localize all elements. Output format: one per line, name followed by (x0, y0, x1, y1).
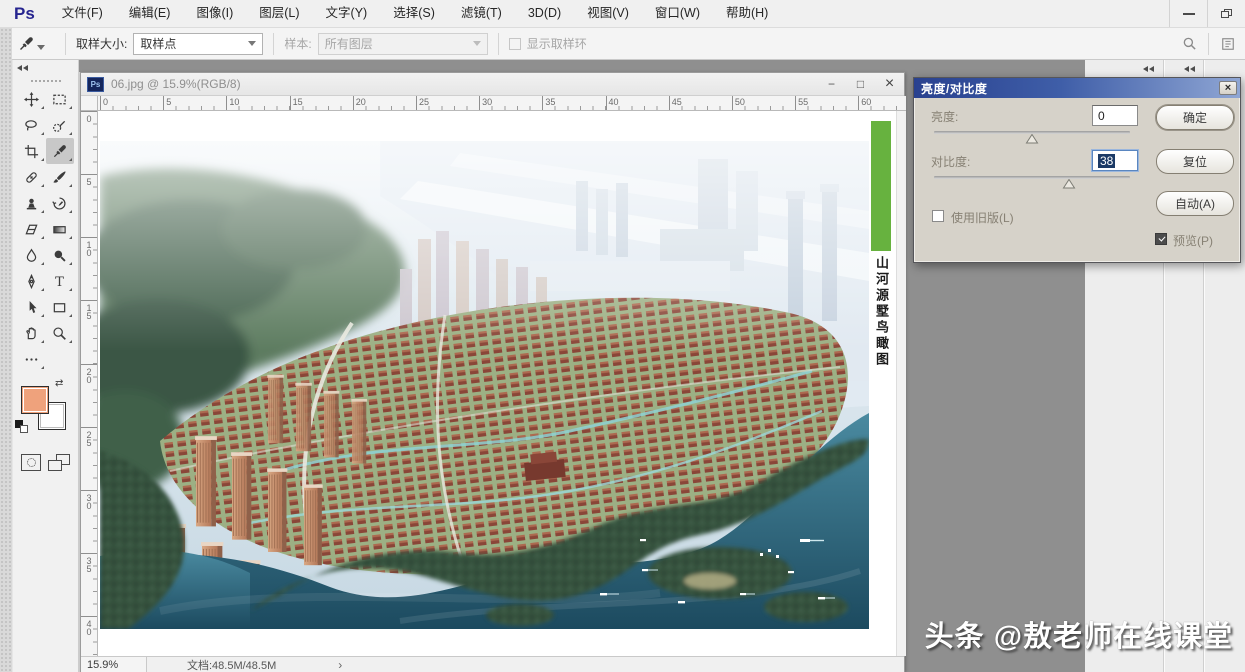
options-bar: 取样大小: 取样点 样本: 所有图层 显示取样环 (0, 28, 1245, 60)
dialog-title: 亮度/对比度 (921, 80, 987, 97)
sample-size-label: 取样大小: (76, 35, 127, 52)
ruler-tick: 15 (290, 96, 353, 110)
ruler-tick: 55 (795, 96, 858, 110)
reset-button[interactable]: 复位 (1156, 149, 1234, 174)
menu-items: 文件(F)编辑(E)图像(I)图层(L)文字(Y)选择(S)滤镜(T)3D(D)… (49, 0, 782, 27)
vertical-ruler[interactable]: 0510152025303540 (81, 111, 98, 656)
restore-icon (1221, 9, 1232, 18)
eraser-tool[interactable] (18, 216, 46, 242)
contrast-slider-track[interactable] (934, 176, 1130, 179)
rectangular-marquee-tool[interactable] (46, 86, 74, 112)
ruler-tick: 5 (81, 174, 97, 237)
spot-healing-brush-tool[interactable] (18, 164, 46, 190)
screen-mode-button[interactable] (48, 454, 70, 471)
app-restore-button[interactable] (1207, 0, 1245, 27)
canvas[interactable]: 山河源墅鸟瞰图 (98, 111, 906, 656)
ruler-tick: 50 (732, 96, 795, 110)
default-colors-icon[interactable] (15, 420, 28, 433)
ok-button[interactable]: 确定 (1156, 105, 1234, 130)
menu-item[interactable]: 文件(F) (49, 0, 116, 27)
status-popup-arrow[interactable]: › (338, 658, 342, 672)
swap-colors-icon[interactable]: ⇄ (55, 378, 63, 389)
vertical-scrollbar[interactable] (896, 111, 906, 656)
lasso-tool[interactable] (18, 112, 46, 138)
preview-label: 预览(P) (1173, 232, 1213, 249)
toolbar-bottom (13, 440, 78, 471)
window-controls (1169, 0, 1245, 27)
contrast-value-selected: 38 (1098, 154, 1115, 168)
color-swatches: ⇄ (13, 376, 78, 440)
poster-vertical-title: 山河源墅鸟瞰图 (869, 256, 893, 426)
ruler-corner[interactable] (81, 96, 98, 111)
move-tool[interactable] (18, 86, 46, 112)
zoom-level-field[interactable]: 15.9% (81, 657, 147, 672)
contrast-value-field[interactable]: 38 (1092, 150, 1138, 171)
sample-label: 样本: (284, 35, 311, 52)
ruler-tick: 20 (353, 96, 416, 110)
search-icon (1182, 36, 1197, 51)
document-window: Ps 06.jpg @ 15.9%(RGB/8) − □ × 051015202… (80, 72, 905, 672)
doc-minimize-button[interactable]: − (817, 73, 846, 95)
workspace-panel-button[interactable] (1211, 28, 1245, 59)
contrast-label: 对比度: (931, 153, 970, 170)
use-legacy-checkbox[interactable] (932, 210, 944, 222)
contrast-slider-thumb[interactable] (1062, 178, 1076, 188)
collapse-panel-button[interactable] (13, 60, 78, 74)
sample-select: 所有图层 (318, 33, 488, 55)
tools-panel: T ⇄ (12, 60, 79, 672)
ruler-tick: 10 (81, 237, 97, 300)
eyedropper-tool[interactable] (46, 138, 74, 164)
dodge-tool[interactable] (46, 242, 74, 268)
menu-item[interactable]: 3D(D) (515, 0, 574, 27)
ruler-tick: 35 (542, 96, 605, 110)
menu-item[interactable]: 编辑(E) (116, 0, 184, 27)
menu-item[interactable]: 窗口(W) (642, 0, 713, 27)
collapse-icon (17, 65, 22, 71)
divider (273, 33, 274, 55)
quick-mask-icon (27, 458, 36, 467)
document-title: 06.jpg @ 15.9%(RGB/8) (111, 77, 241, 91)
ruler-tick: 5 (163, 96, 226, 110)
sample-size-value: 取样点 (140, 35, 176, 52)
menu-item[interactable]: 图层(L) (246, 0, 312, 27)
menu-item[interactable]: 选择(S) (380, 0, 448, 27)
panel-drag-edge (0, 28, 12, 672)
shape-tool[interactable] (46, 294, 74, 320)
photoshop-app: Ps 文件(F)编辑(E)图像(I)图层(L)文字(Y)选择(S)滤镜(T)3D… (0, 0, 1245, 672)
chevron-down-icon (37, 45, 45, 50)
preview-checkbox[interactable] (1155, 233, 1167, 245)
brightness-value: 0 (1098, 109, 1105, 123)
eyedropper-icon (18, 36, 34, 52)
doc-close-button[interactable]: × (875, 73, 904, 95)
dialog-titlebar[interactable]: 亮度/对比度 × (914, 78, 1240, 98)
pen-tool[interactable] (18, 268, 46, 294)
ruler-tick: 40 (81, 616, 97, 656)
ruler-tick: 30 (479, 96, 542, 110)
watermark-text: 头条 @敖老师在线课堂 (925, 613, 1233, 655)
show-sampling-ring-checkbox (509, 38, 521, 50)
zoom-tool[interactable] (46, 320, 74, 346)
show-sampling-ring-label: 显示取样环 (527, 35, 587, 52)
ruler-tick: 30 (81, 490, 97, 553)
document-size-info: 文档:48.5M/48.5M (187, 657, 276, 672)
brightness-value-field[interactable]: 0 (1092, 105, 1138, 126)
collapse-icon (23, 65, 28, 71)
gradient-tool[interactable] (46, 216, 74, 242)
ruler-tick: 15 (81, 300, 97, 363)
divider (65, 33, 66, 55)
ps-logo: Ps (0, 4, 49, 24)
aerial-render-image[interactable] (100, 141, 869, 629)
auto-button[interactable]: 自动(A) (1156, 191, 1234, 216)
search-button[interactable] (1172, 28, 1206, 59)
ruler-tick: 20 (81, 364, 97, 427)
history-brush-tool[interactable] (46, 190, 74, 216)
type-tool[interactable]: T (46, 268, 74, 294)
quick-selection-tool[interactable] (46, 112, 74, 138)
divider (498, 33, 499, 55)
path-selection-tool[interactable] (18, 294, 46, 320)
panel-list-icon (1221, 37, 1235, 51)
svg-text:T: T (55, 275, 64, 289)
brightness-slider-thumb[interactable] (1025, 133, 1039, 143)
crop-tool[interactable] (18, 138, 46, 164)
more-options-tool[interactable] (18, 346, 46, 372)
clone-stamp-tool[interactable] (18, 190, 46, 216)
panel-grip[interactable] (31, 80, 61, 82)
use-legacy-label: 使用旧版(L) (951, 209, 1014, 226)
tool-grid: T (13, 86, 78, 372)
menu-item[interactable]: 文字(Y) (313, 0, 381, 27)
sample-value: 所有图层 (325, 35, 373, 52)
ruler-tick: 0 (81, 111, 97, 174)
quick-mask-button[interactable] (21, 454, 41, 471)
chevron-down-icon (248, 41, 256, 46)
ruler-tick: 40 (606, 96, 669, 110)
dialog-close-button[interactable]: × (1219, 81, 1237, 95)
document-titlebar[interactable]: Ps 06.jpg @ 15.9%(RGB/8) − □ × (81, 73, 904, 96)
app-minimize-button[interactable] (1169, 0, 1207, 27)
ruler-tick: 25 (416, 96, 479, 110)
workspace-background (79, 60, 1085, 72)
foreground-color-swatch[interactable] (21, 386, 49, 414)
ruler-tick: 10 (226, 96, 289, 110)
brush-tool[interactable] (46, 164, 74, 190)
status-bar: 15.9% 文档:48.5M/48.5M › (81, 656, 904, 672)
menu-item[interactable]: 滤镜(T) (448, 0, 515, 27)
brightness-label: 亮度: (931, 108, 958, 125)
ruler-tick: 60 (858, 96, 906, 110)
poster-green-strip (871, 121, 891, 251)
horizontal-ruler[interactable]: 051015202530354045505560 (98, 96, 906, 111)
ruler-tick: 25 (81, 427, 97, 490)
chevron-down-icon (473, 41, 481, 46)
options-bar-right (1172, 28, 1245, 59)
menu-item[interactable]: 视图(V) (574, 0, 642, 27)
file-type-icon: Ps (87, 77, 104, 92)
ruler-tick: 0 (100, 96, 163, 110)
document-window-controls: − □ × (817, 73, 904, 95)
blur-tool[interactable] (18, 242, 46, 268)
menu-item[interactable]: 图像(I) (183, 0, 246, 27)
sample-size-select[interactable]: 取样点 (133, 33, 263, 55)
brightness-contrast-dialog: 亮度/对比度 × 亮度: 0 对比度: 38 确定 复位 自动(A) 使用旧版(… (913, 77, 1241, 263)
ruler-tick: 35 (81, 553, 97, 616)
menu-item[interactable]: 帮助(H) (713, 0, 781, 27)
ruler-tick: 45 (669, 96, 732, 110)
minimize-icon (1183, 13, 1195, 15)
active-tool-preview[interactable] (18, 36, 45, 52)
doc-maximize-button[interactable]: □ (846, 73, 875, 95)
divider (1208, 33, 1209, 55)
hand-tool[interactable] (18, 320, 46, 346)
menu-bar: Ps 文件(F)编辑(E)图像(I)图层(L)文字(Y)选择(S)滤镜(T)3D… (0, 0, 1245, 28)
